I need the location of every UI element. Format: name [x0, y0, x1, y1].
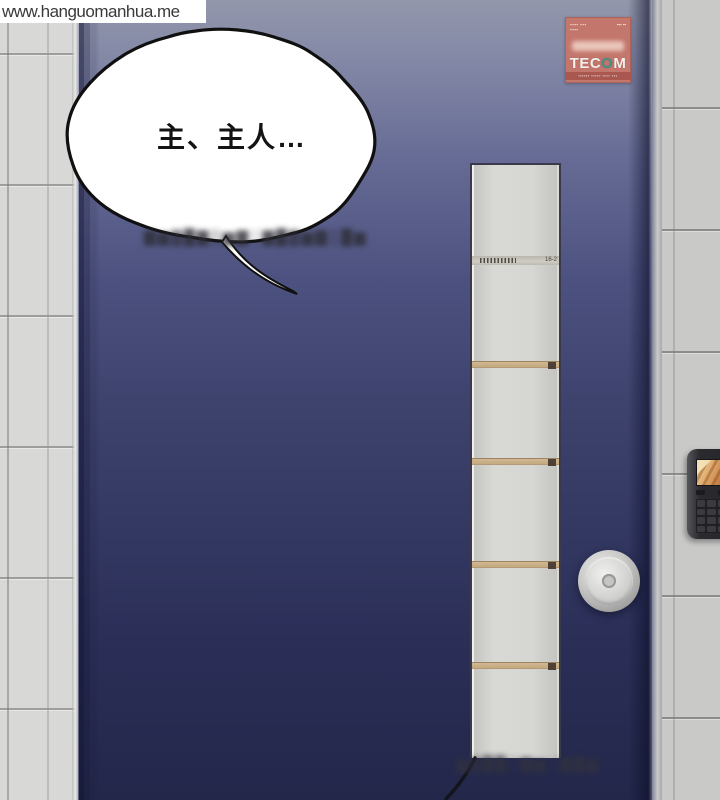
window-tag-label: 16-2: [545, 257, 557, 264]
door-window-strip: 16-2: [470, 163, 561, 758]
keypad-key: [697, 517, 705, 524]
comic-panel: 16-2 ▪▪▪▪ ▪▪▪: [0, 0, 720, 800]
keypad-key: [707, 500, 715, 507]
keypad-key: [707, 517, 715, 524]
divider-tag: [548, 459, 556, 466]
blurred-watermark-text: ▆▓██▒▇▆░▇█▆: [456, 755, 600, 773]
divider-tag: [548, 663, 556, 670]
tiled-wall-left: [0, 0, 78, 800]
divider-tag: [548, 562, 556, 569]
lock-button: [696, 490, 705, 495]
blurred-watermark-text: ▇▆▓█▇▒▆▇░▇█▓▆▇▒█▆: [144, 228, 367, 246]
door-lock-keypad: [696, 499, 720, 533]
keypad-key: [697, 526, 705, 533]
sticker-bottom-band: ▪▪▪▪▪▪ ▪▪▪▪▪ ▪▪▪▪ ▪▪▪: [565, 72, 631, 80]
keypad-key: [697, 500, 705, 507]
comic-linework: [0, 0, 720, 800]
keypad-key: [707, 526, 715, 533]
tile-grout-line: [47, 0, 49, 800]
door-knob: [578, 550, 640, 612]
door-lock-buttons: [696, 490, 720, 495]
tecom-sticker: ▪▪▪▪ ▪▪▪ ▪▪▪▪ ▪▪▪ ▪▪ TECOM ▪▪▪▪▪▪ ▪▪▪▪▪ …: [565, 17, 631, 83]
keyhole: [602, 574, 616, 588]
digital-door-lock: [687, 449, 720, 539]
divider-tag: [548, 362, 556, 369]
tiled-wall-right: [662, 0, 720, 800]
door-edge-right: [628, 0, 652, 800]
window-divider: [472, 361, 559, 368]
window-divider: [472, 561, 559, 568]
door-lock-screen: [696, 459, 720, 486]
barcode-pattern: [480, 258, 516, 263]
sticker-fine-print: ▪▪▪▪ ▪▪▪ ▪▪▪▪: [570, 22, 586, 32]
sticker-fine-print: ▪▪▪ ▪▪: [617, 22, 626, 27]
window-divider: [472, 458, 559, 465]
sticker-blur-band: [572, 41, 624, 51]
window-divider-barcode: 16-2: [472, 256, 559, 265]
keypad-key: [707, 509, 715, 516]
tile-grout-line: [673, 0, 675, 800]
door-knob-face: [585, 557, 633, 605]
door-frame-right: [652, 0, 662, 800]
tile-grout-line: [7, 0, 9, 800]
door-edge-left: [78, 0, 100, 800]
site-watermark: www.hanguomanhua.me: [0, 0, 206, 23]
speech-bubble-text: 主、主人…: [132, 116, 332, 156]
keypad-key: [697, 509, 705, 516]
tecom-logo: TECOM: [565, 55, 631, 72]
window-divider: [472, 662, 559, 669]
